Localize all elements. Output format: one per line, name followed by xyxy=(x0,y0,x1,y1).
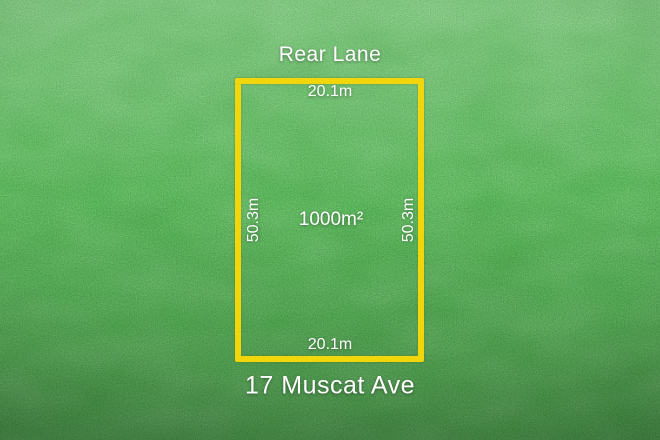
dimension-frontage-bottom: 20.1m xyxy=(308,336,352,354)
street-address-label: 17 Muscat Ave xyxy=(245,372,415,401)
street-label-top: Rear Lane xyxy=(279,43,382,67)
lot-area-label: 1000m² xyxy=(299,209,363,231)
dimension-depth-left: 50.3m xyxy=(245,198,263,242)
land-lot-advert: Rear Lane 20.1m 50.3m 1000m² 50.3m 20.1m… xyxy=(0,0,660,440)
dimension-depth-right: 50.3m xyxy=(400,198,418,242)
dimension-frontage-top: 20.1m xyxy=(308,83,352,101)
